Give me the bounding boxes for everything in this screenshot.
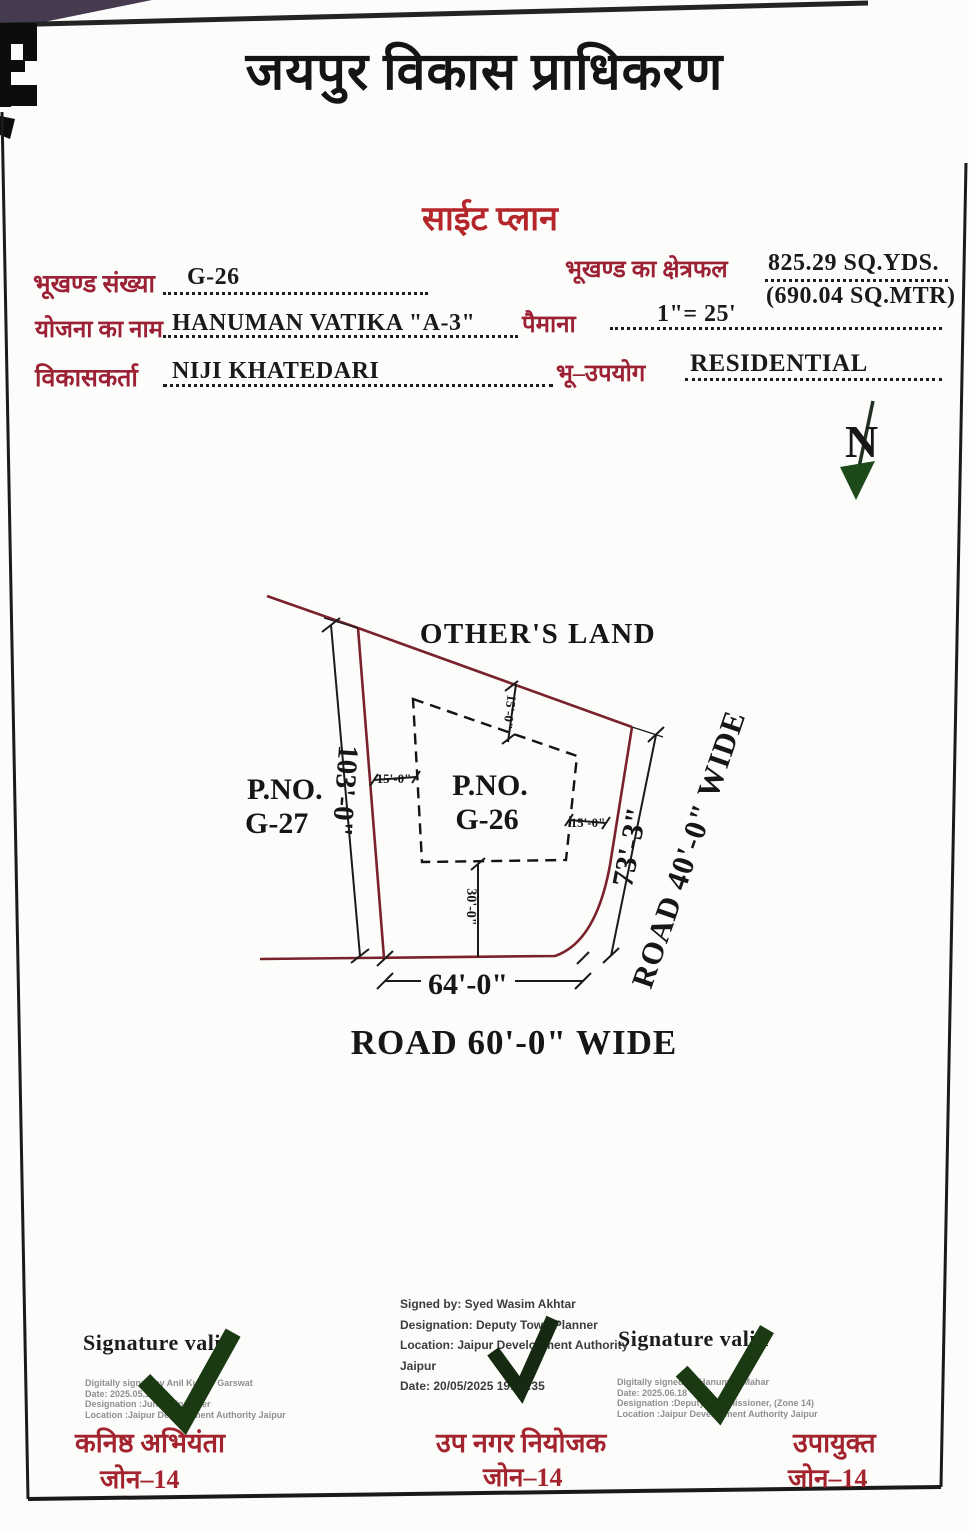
- subject-plot-label-line1: P.NO.: [452, 769, 528, 802]
- digital-signature-left-line3: Designation :Junior Engineer: [85, 1399, 286, 1410]
- setback-east-text: 15'-0": [571, 815, 606, 830]
- setback-west-text: 15'-0": [377, 771, 412, 786]
- scale-label: पैमाना: [522, 307, 576, 340]
- land-use-dotted-line: [685, 378, 942, 381]
- digital-signature-center-line1: Signed by: Syed Wasim Akhtar: [400, 1294, 628, 1315]
- dimension-east-text: 73'-3": [606, 805, 654, 890]
- document-title: साईट प्लान: [300, 194, 680, 240]
- dimension-west-text: 103'-0": [326, 744, 364, 838]
- boundary-west: [358, 628, 384, 958]
- digital-signature-left-line4: Location :Jaipur Development Authority J…: [85, 1410, 286, 1421]
- north-arrow: N: [840, 401, 878, 500]
- document-page: N: [0, 0, 969, 1533]
- adjacent-plot-label-line1: P.NO.: [247, 773, 323, 806]
- plot-area-value-mtr: (690.04 SQ.MTR): [766, 283, 956, 310]
- authority-title: जयपुर विकास प्राधिकरण: [0, 34, 969, 105]
- scan-top-edge-line: [0, 3, 868, 25]
- digital-signature-right: Digitally signed by Hanuman Mahar Date: …: [617, 1377, 818, 1419]
- designation-left: कनिष्ठ अभियंता: [75, 1423, 225, 1460]
- others-land-label: OTHER'S LAND: [420, 618, 656, 650]
- scheme-name-label: योजना का नाम: [35, 312, 163, 345]
- plot-number-dotted-line: [163, 292, 428, 295]
- zone-right: जोन–14: [788, 1459, 867, 1495]
- digital-signature-left-line2: Date: 2025.05.16: [85, 1389, 286, 1400]
- plot-area-value: 825.29 SQ.YDS.: [768, 250, 939, 277]
- digital-signature-right-line4: Location :Jaipur Development Authority J…: [617, 1409, 818, 1420]
- boundary-north: [267, 596, 632, 727]
- zone-left: जोन–14: [100, 1460, 179, 1496]
- boundary-east-south: [260, 727, 632, 959]
- plot-area-dotted-line: [765, 279, 948, 282]
- plot-number-value: G-26: [187, 264, 240, 291]
- digital-signature-center-line5: Date: 20/05/2025 19:37:35: [400, 1376, 628, 1397]
- signature-valid-left: Signature valid: [83, 1330, 234, 1356]
- land-use-label: भू–उपयोग: [556, 356, 645, 389]
- digital-signature-left: Digitally signed by Anil Kumar Garswat D…: [85, 1378, 286, 1420]
- digital-signature-left-line1: Digitally signed by Anil Kumar Garswat: [85, 1378, 286, 1389]
- scheme-name-value: HANUMAN VATIKA "A-3": [172, 310, 475, 337]
- scale-value: 1"= 25': [657, 301, 736, 328]
- developer-label: विकासकर्ता: [35, 360, 138, 394]
- designation-center: उप नगर नियोजक: [436, 1423, 606, 1460]
- zone-center: जोन–14: [483, 1458, 562, 1494]
- digital-signature-center-line4: Jaipur: [400, 1356, 628, 1377]
- dimension-south-text: 64'-0": [428, 968, 508, 1001]
- north-letter: N: [845, 416, 878, 467]
- setback-north-text: 15'-0": [500, 694, 519, 730]
- digital-signature-center: Signed by: Syed Wasim Akhtar Designation…: [400, 1294, 628, 1397]
- developer-value: NIJI KHATEDARI: [172, 358, 379, 385]
- road-south-label: ROAD 60'-0" WIDE: [351, 1023, 677, 1062]
- land-use-value: RESIDENTIAL: [690, 350, 868, 378]
- adjacent-plot-label-line2: G-27: [245, 807, 308, 840]
- digital-signature-right-line2: Date: 2025.06.18: [617, 1388, 818, 1399]
- digital-signature-right-line3: Designation :Deputy Commissioner, (Zone …: [617, 1398, 818, 1409]
- designation-right: उपायुक्त: [793, 1423, 876, 1460]
- subject-plot-label-line2: G-26: [455, 803, 518, 836]
- digital-signature-right-line1: Digitally signed by Hanuman Mahar: [617, 1377, 818, 1388]
- digital-signature-center-line3: Location: Jaipur Development Authority: [400, 1335, 628, 1356]
- signature-valid-right: Signature valid: [618, 1326, 769, 1352]
- plot-area-label: भूखण्ड का क्षेत्रफल: [565, 252, 728, 285]
- plot-number-label: भूखण्ड संख्या: [33, 266, 155, 300]
- digital-signature-center-line2: Designation: Deputy Town Planner: [400, 1315, 628, 1336]
- setback-south-text: 30'-0": [463, 888, 479, 926]
